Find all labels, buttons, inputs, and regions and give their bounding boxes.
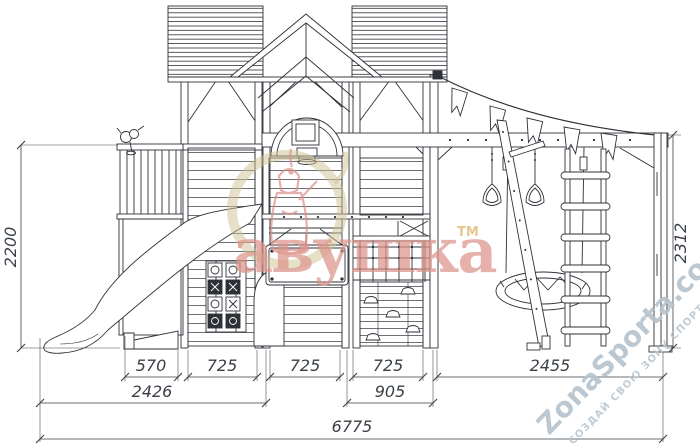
dim-label-2426: 2426 [132,382,173,401]
balusters [120,150,183,214]
a-frame-leg [497,120,550,350]
dim-label-725-2: 725 [290,356,321,375]
rope-ladder [561,149,610,346]
telescope [117,126,144,155]
structure [44,6,672,353]
rock-climbing-wall [360,282,423,346]
dim-label-905: 905 [375,382,406,401]
drawing-page: 570 725 725 725 2455 2426 905 6775 2200 … [0,0,700,444]
brand-tm-mark: ТМ [457,225,479,240]
base-ramp [124,331,178,349]
dim-label-6775: 6775 [332,417,373,436]
dim-label-725-3: 725 [373,356,404,375]
gable-truss [258,23,354,112]
rope-anchor [433,71,442,79]
dim-label-570: 570 [136,356,167,375]
dim-label-2200: 2200 [1,227,20,268]
dim-label-2455: 2455 [530,356,571,375]
playground-elevation-drawing: 570 725 725 725 2455 2426 905 6775 2200 … [0,0,700,444]
dim-label-725-1: 725 [207,356,238,375]
flag-rope [438,76,666,136]
